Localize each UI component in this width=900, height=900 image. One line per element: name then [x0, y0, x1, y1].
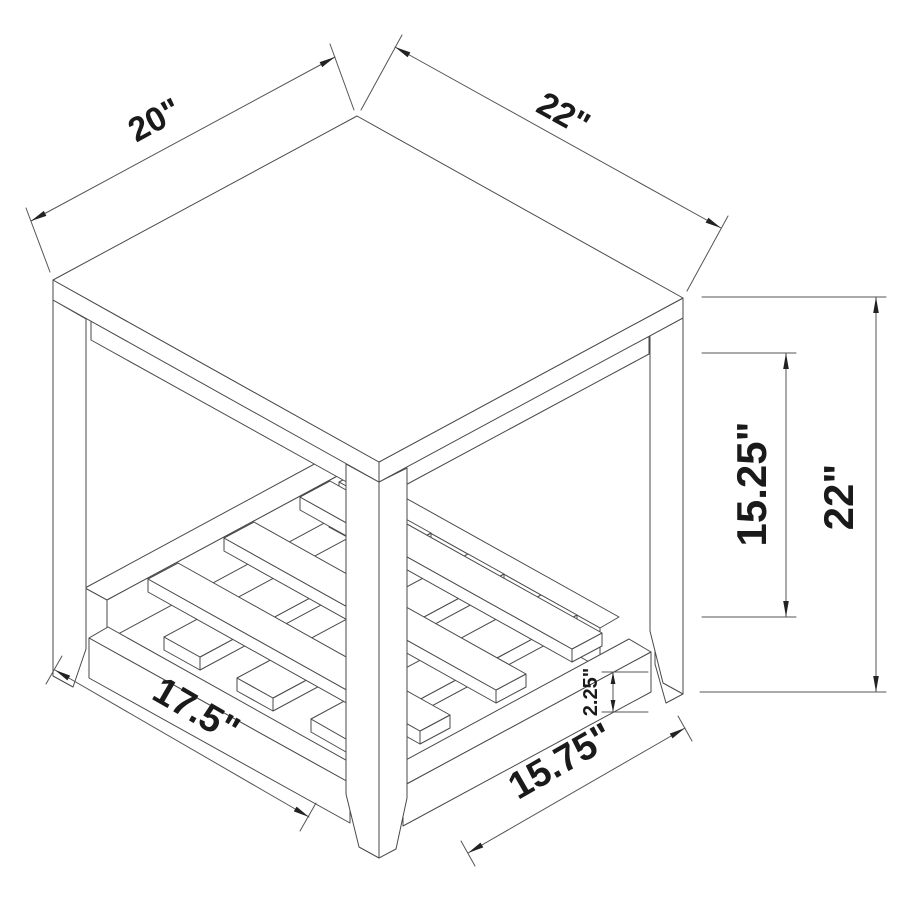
arrowhead — [395, 47, 410, 57]
dim-label-shelf-clearance: 15.25" — [728, 421, 775, 546]
dim-label-rail-height: 2.25" — [580, 668, 602, 716]
arrowhead — [783, 601, 789, 617]
extension-line — [330, 44, 354, 110]
arrowhead — [873, 297, 879, 313]
arrowhead — [783, 353, 789, 369]
extension-line — [361, 35, 402, 110]
extension-line — [687, 216, 728, 291]
end-table-dimension-diagram: 20" 22" 15.25" 22" — [0, 0, 900, 900]
front-leg-right-face — [379, 468, 407, 858]
arrowhead — [670, 728, 685, 738]
arrowhead — [706, 218, 721, 228]
dim-label-top-right: 22" — [531, 85, 597, 144]
dim-shelf-clearance: 15.25" — [702, 353, 796, 617]
technical-drawing-canvas: 20" 22" 15.25" 22" — [0, 0, 900, 900]
dim-label-top-left: 20" — [122, 91, 188, 150]
arrowhead — [294, 807, 309, 817]
arrowhead — [873, 676, 879, 692]
dim-label-overall-height: 22" — [815, 464, 862, 531]
arrowhead — [468, 843, 483, 853]
arrowhead — [320, 57, 335, 67]
front-leg-left-face — [346, 464, 379, 858]
table-top — [53, 116, 683, 482]
left-leg-side-face — [53, 300, 86, 687]
arrowhead — [31, 211, 46, 221]
extension-line — [300, 803, 316, 831]
right-leg-side-face — [650, 300, 683, 694]
table-top-surface — [53, 116, 683, 462]
